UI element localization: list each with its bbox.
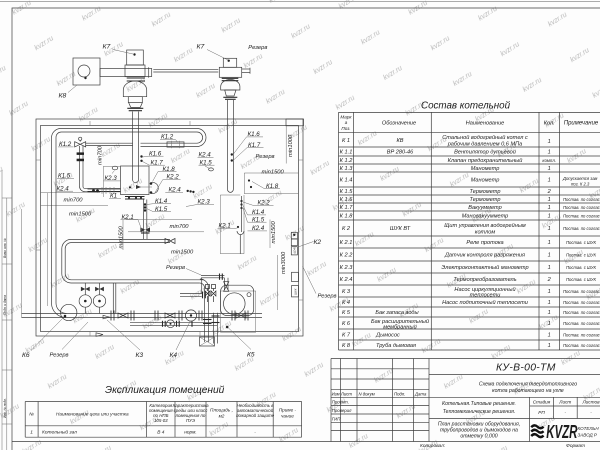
svg-text:Вакуумметр: Вакуумметр (468, 205, 502, 211)
svg-text:К 1: К 1 (342, 138, 350, 144)
svg-text:поз. К 2.3: поз. К 2.3 (571, 182, 590, 187)
svg-text:К6: К6 (22, 352, 30, 359)
svg-text:ЗАВОД Р: ЗАВОД Р (578, 433, 597, 438)
svg-text:К 7: К 7 (342, 333, 351, 339)
svg-text:Резерв: Резерв (248, 45, 267, 51)
svg-text:1: 1 (548, 197, 551, 203)
svg-text:Резерв: Резерв (256, 154, 275, 160)
svg-text:Щит управления водогрейным: Щит управления водогрейным (444, 222, 526, 229)
svg-text:К 1.7: К 1.7 (340, 205, 354, 211)
svg-text:Котельная.Типовые решения.: Котельная.Типовые решения. (442, 401, 516, 407)
svg-text:Экспликация помещений: Экспликация помещений (105, 385, 225, 396)
svg-text:ШУК: ШУК (293, 247, 297, 254)
svg-text:Лист: Лист (558, 400, 571, 405)
svg-text:Наименование: Наименование (466, 121, 505, 127)
svg-text:Тепломеханические решения.: Тепломеханические решения. (443, 409, 516, 415)
svg-text:К 1.3: К 1.3 (340, 166, 354, 172)
svg-text:min3000: min3000 (281, 251, 287, 274)
svg-text:Состав котельной: Состав котельной (421, 101, 511, 112)
svg-text:К7: К7 (103, 44, 111, 51)
svg-text:Кол.: Кол. (544, 121, 555, 127)
svg-text:Датчик контроля разряжения: Датчик контроля разряжения (444, 253, 525, 259)
svg-text:Резерв: Резерв (50, 353, 69, 359)
svg-text:К 1.8: К 1.8 (340, 214, 354, 220)
svg-text:Инв. № подл.: Инв. № подл. (3, 398, 7, 418)
svg-text:Постав. по соглас: Постав. по соглас (563, 310, 600, 315)
svg-text:min1500: min1500 (262, 169, 285, 175)
svg-text:а: а (345, 120, 348, 125)
svg-text:Стадия: Стадия (533, 400, 551, 405)
svg-text:Изм: Изм (332, 391, 340, 396)
svg-text:мембранный: мембранный (383, 323, 416, 330)
svg-text:Формат: Формат (566, 443, 585, 449)
svg-text:К2: К2 (314, 239, 322, 246)
svg-text:Схема подключения твердотоплив: Схема подключения твердотопливного (479, 382, 577, 388)
svg-text:Проверил: Проверил (332, 408, 352, 413)
svg-text:К8: К8 (59, 93, 67, 100)
svg-text:Насос подпиточный теплосети: Насос подпиточный теплосети (442, 299, 528, 306)
svg-text:К5: К5 (247, 352, 255, 359)
svg-text:min1000: min1000 (288, 134, 294, 157)
svg-text:1: 1 (548, 166, 551, 172)
svg-text:К 1.4: К 1.4 (340, 178, 353, 184)
svg-text:min700: min700 (98, 145, 104, 165)
svg-text:ПУЭ: ПУЭ (186, 418, 195, 423)
svg-text:Манометр: Манометр (471, 178, 500, 184)
svg-text:1: 1 (548, 205, 551, 211)
svg-text:К 2.3: К 2.3 (340, 265, 354, 271)
svg-text:Постав. по соглас: Постав. по соглас (563, 343, 600, 348)
svg-text:Обозначение: Обозначение (382, 121, 416, 127)
svg-text:Клапан предохранительный: Клапан предохранительный (448, 157, 523, 164)
svg-text:min1500: min1500 (69, 212, 92, 218)
svg-text:Постав. по соглас: Постав. по соглас (563, 300, 600, 305)
svg-text:Постав. по соглас: Постав. по соглас (563, 321, 600, 326)
svg-text:норм.: норм. (184, 431, 197, 436)
svg-text:К7: К7 (197, 44, 205, 51)
svg-text:Постав. по соглас: Постав. по соглас (563, 205, 600, 210)
svg-text:Вентилятор дутьевой: Вентилятор дутьевой (454, 149, 516, 156)
svg-text:1: 1 (548, 343, 551, 349)
svg-text:К 8: К 8 (342, 343, 351, 349)
svg-text:К 2.1: К 2.1 (340, 240, 353, 246)
svg-text:1: 1 (548, 139, 551, 145)
svg-text:Резерв: Резерв (318, 294, 337, 300)
svg-text:1: 1 (548, 214, 551, 220)
svg-text:К 5: К 5 (342, 310, 351, 316)
svg-text:min1500: min1500 (271, 220, 277, 243)
svg-text:Подп. и дата: Подп. и дата (3, 295, 7, 315)
svg-text:К 2.2: К 2.2 (340, 253, 354, 259)
svg-text:К 1.5: К 1.5 (340, 189, 354, 195)
svg-text:Лист: Лист (340, 391, 352, 396)
svg-text:К 1.6: К 1.6 (340, 197, 354, 203)
svg-text:Мановакуумметр: Мановакуумметр (462, 214, 509, 220)
svg-text:ШУК: ШУК (294, 288, 298, 295)
svg-text:В 4: В 4 (157, 430, 165, 436)
svg-text:отметку 0,000: отметку 0,000 (460, 433, 497, 439)
svg-text:Труба дымовая: Труба дымовая (376, 343, 416, 349)
svg-text:Листов: Листов (581, 400, 600, 405)
svg-text:Дата: Дата (414, 391, 427, 396)
svg-text:Термометр: Термометр (470, 189, 501, 195)
svg-text:1: 1 (548, 333, 551, 339)
svg-text:1: 1 (548, 150, 551, 156)
svg-text:1: 1 (548, 310, 551, 316)
svg-text:Копировал:: Копировал: (420, 443, 446, 449)
svg-text:1: 1 (548, 253, 551, 259)
svg-text:Марк: Марк (340, 115, 352, 120)
svg-text:КОТЕЛЬН: КОТЕЛЬН (578, 426, 600, 431)
svg-text:ГИП: ГИП (332, 416, 341, 421)
svg-text:1: 1 (548, 240, 551, 246)
svg-text:К 1.2: К 1.2 (340, 158, 354, 164)
svg-text:ВР 280-46: ВР 280-46 (387, 150, 414, 156)
svg-text:К 3: К 3 (342, 289, 351, 295)
svg-text:1: 1 (548, 265, 551, 271)
svg-text:ШУК ВТ: ШУК ВТ (390, 226, 411, 232)
svg-text:min1500: min1500 (119, 225, 125, 248)
svg-text:1: 1 (548, 178, 551, 184)
svg-text:К 1.1: К 1.1 (340, 150, 353, 156)
svg-text:Постав. по соглас: Постав. по соглас (563, 214, 600, 219)
svg-text:Постав. по соглас: Постав. по соглас (563, 289, 600, 294)
svg-text:1: 1 (548, 321, 551, 327)
svg-text:Постав. по соглас: Постав. по соглас (563, 197, 600, 202)
svg-text:Постав. с ШУК: Постав. с ШУК (566, 277, 597, 282)
svg-text:Постав. по соглас: Постав. по соглас (563, 226, 600, 231)
svg-text:РП: РП (538, 410, 545, 415)
svg-text:рабочим давлением 0,6 МПа: рабочим давлением 0,6 МПа (447, 141, 523, 147)
svg-text:теплосети: теплосети (470, 292, 501, 298)
svg-text:К 6: К 6 (342, 321, 351, 327)
svg-text:KVZR: KVZR (546, 423, 577, 443)
svg-text:К 4: К 4 (342, 300, 350, 306)
svg-text:Резерв: Резерв (166, 265, 185, 271)
svg-text:Бак запаса воды: Бак запаса воды (375, 310, 418, 316)
svg-text:Площадь ,: Площадь , (210, 408, 233, 413)
svg-text:пожарной защите: пожарной защите (236, 413, 274, 418)
svg-text:Постав. с ШУК: Постав. с ШУК (566, 265, 597, 270)
svg-text:КУ-В-00-ТМ: КУ-В-00-ТМ (496, 363, 556, 374)
svg-text:К3: К3 (136, 352, 144, 359)
svg-text:К4: К4 (170, 352, 178, 359)
svg-text:чание: чание (281, 414, 294, 419)
svg-text:105-03: 105-03 (154, 418, 168, 423)
svg-text:котла работающего на угле: котла работающего на угле (492, 388, 564, 394)
svg-text:Допускается зам: Допускается зам (562, 176, 598, 181)
svg-text:1: 1 (548, 226, 551, 232)
svg-text:Взам. инв. №: Взам. инв. № (3, 238, 7, 258)
svg-text:Стальной водогрейный котел с: Стальной водогрейный котел с (442, 134, 528, 141)
svg-text:Электроконтактный манометр: Электроконтактный манометр (441, 264, 528, 271)
svg-text:1: 1 (548, 289, 551, 295)
svg-text:Проект.: Проект. (332, 400, 349, 405)
svg-text:1: 1 (30, 430, 33, 436)
svg-text:Поз.: Поз. (341, 126, 350, 131)
svg-text:Постав. с ШУК: Постав. с ШУК (566, 253, 597, 258)
svg-text:№: № (29, 412, 34, 417)
svg-text:Постав. по соглас: Постав. по соглас (563, 332, 600, 337)
svg-text:1: 1 (548, 300, 551, 306)
svg-text:м2: м2 (219, 414, 225, 419)
svg-text:котлом: котлом (475, 230, 496, 236)
svg-text:Термометр: Термометр (470, 197, 501, 203)
svg-text:К 2: К 2 (342, 226, 351, 232)
svg-text:К 2.4: К 2.4 (340, 277, 353, 283)
svg-text:компл.: компл. (542, 158, 556, 163)
svg-text:Дымосос: Дымосос (375, 333, 400, 339)
svg-text:Постав. с ШУК: Постав. с ШУК (566, 240, 597, 245)
svg-text:Подп.: Подп. (394, 391, 405, 396)
svg-text:Наименование цеха или участка: Наименование цеха или участка (56, 412, 129, 417)
svg-text:Реле протока: Реле протока (466, 240, 503, 246)
svg-text:Примечание: Примечание (564, 121, 599, 127)
svg-text:Термопреобразователь: Термопреобразователь (453, 277, 516, 283)
svg-text:min1500: min1500 (171, 249, 194, 255)
svg-text:Манометр: Манометр (471, 166, 500, 172)
svg-text:Котельный зал: Котельный зал (42, 429, 77, 436)
svg-text:Приме -: Приме - (279, 408, 297, 413)
svg-text:КВ: КВ (396, 138, 403, 144)
svg-text:N докум: N докум (359, 391, 375, 396)
svg-text:min700: min700 (170, 224, 190, 230)
svg-text:min700: min700 (64, 197, 84, 203)
